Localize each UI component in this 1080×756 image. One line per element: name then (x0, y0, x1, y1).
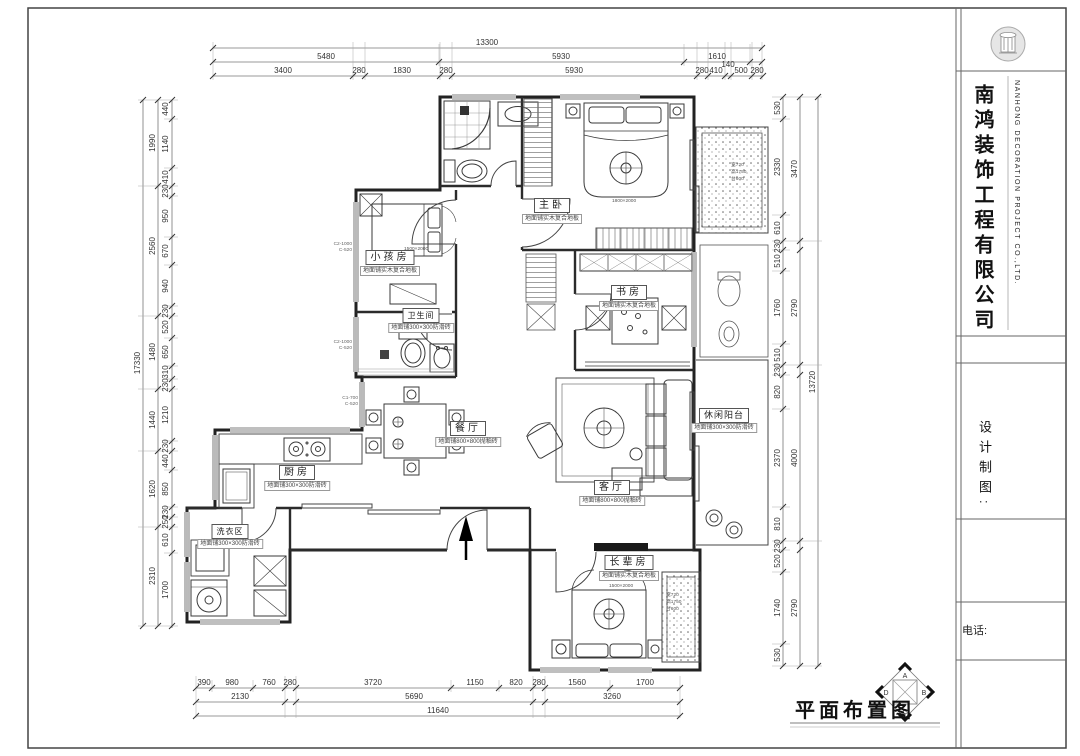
room-label-living: 客厅 (594, 480, 630, 495)
room-label-kitchen: 厨房 (279, 465, 315, 480)
room-note-living: 地面铺800×800抛釉砖 (579, 496, 645, 506)
dim-text: 1210 (161, 406, 170, 424)
dim-text: 2130 (231, 692, 249, 701)
dim-text: 510 (773, 348, 782, 362)
window-tag: C2-1000 (334, 241, 353, 247)
dim-text: 230 (161, 304, 170, 318)
window-tag: C-520 (339, 345, 352, 351)
dim-text: 280 (283, 678, 297, 687)
room-label-bath: 卫生间 (403, 308, 440, 323)
dim-text: 3260 (603, 692, 621, 701)
dim-text: 940 (161, 279, 170, 293)
elder-room-furniture (552, 570, 662, 658)
dim-text: 1440 (148, 411, 157, 429)
dim-text: 1740 (773, 599, 782, 617)
spec-line: 台600 (731, 175, 744, 182)
dim-text: 820 (773, 385, 782, 399)
company-name-en: NANHONG DECORATION PROJECT CO.,LTD. (1013, 80, 1020, 340)
dim-text: 810 (773, 517, 782, 531)
dim-text: 820 (509, 678, 523, 687)
master-bathroom (444, 99, 552, 186)
compass-a: A (903, 673, 908, 680)
balcony-leisure (696, 360, 768, 545)
room-label-study: 书房 (611, 285, 647, 300)
dim-text: 530 (773, 648, 782, 662)
dim-text: 1700 (636, 678, 654, 687)
dim-text: 280 (439, 66, 453, 75)
dim-text: 1140 (161, 135, 170, 153)
dim-text: 13300 (476, 38, 499, 47)
bed-note-elder: 1500×2000 (609, 583, 633, 589)
room-label-kids: 小孩房 (366, 250, 415, 265)
room-label-dining: 餐厅 (450, 421, 486, 436)
master-bedroom-furniture (566, 103, 692, 249)
window-tag: C2-1000 (334, 339, 353, 345)
dim-text: 280 (695, 66, 709, 75)
dim-text: 230 (773, 239, 782, 253)
dim-text: 440 (161, 454, 170, 468)
dim-text: 2310 (148, 567, 157, 585)
room-note-bath: 地面铺300×300防滑砖 (388, 323, 454, 333)
dim-text: 4000 (790, 449, 799, 467)
dim-text: 1560 (568, 678, 586, 687)
dim-text: 850 (161, 482, 170, 496)
dim-text: 280 (532, 678, 546, 687)
dim-text: 2370 (773, 449, 782, 467)
dim-text: 230 (161, 378, 170, 392)
laundry-furniture (191, 540, 286, 616)
dim-text: 530 (773, 101, 782, 115)
spec-line: 台600 (666, 605, 679, 612)
balcony-platform (700, 245, 768, 357)
room-note-kitchen: 地面铺300×300防滑砖 (264, 481, 330, 491)
room-label-laundry: 洗衣区 (212, 524, 249, 539)
dim-text: 250 (161, 515, 170, 529)
room-label-master: 主卧 (534, 198, 570, 213)
living-room-furniture (524, 378, 692, 551)
dim-text: 3470 (790, 160, 799, 178)
dim-text: 5930 (552, 52, 570, 61)
dim-text: 13720 (808, 370, 817, 393)
dim-text: 11640 (427, 706, 449, 715)
dim-text: 500 (734, 66, 748, 75)
compass-b: B (922, 690, 927, 697)
dim-text: 650 (161, 345, 170, 359)
room-note-master: 地面铺实木复合地板 (522, 214, 582, 224)
dim-text: 280 (750, 66, 764, 75)
room-label-elder: 长辈房 (605, 555, 654, 570)
room-note-kids: 地面铺实木复合地板 (360, 266, 420, 276)
dim-text: 5480 (317, 52, 335, 61)
dim-text: 17330 (133, 351, 142, 374)
room-note-study: 地面铺实木复合地板 (599, 301, 659, 311)
north-arrow-icon (459, 516, 473, 560)
dim-text: 5930 (565, 66, 583, 75)
dim-text: 1480 (148, 343, 157, 361)
sheet-title-underline (790, 723, 940, 727)
dim-text: 230 (161, 439, 170, 453)
dim-text: 3720 (364, 678, 382, 687)
dim-text: 230 (773, 539, 782, 553)
dim-text: 280 (352, 66, 366, 75)
dim-text: 230 (161, 184, 170, 198)
common-bathroom (358, 330, 454, 375)
sheet-title: 平面布置图 (795, 694, 915, 723)
dim-text: 310 (161, 365, 170, 379)
dim-text: 1990 (148, 134, 157, 152)
dim-text: 2790 (790, 599, 799, 617)
drawing-sheet: 1800×2000 1500×2000 1500×2000 宽720 高1750… (0, 0, 1080, 756)
dim-text: 510 (773, 254, 782, 268)
room-note-elder: 地面铺实木复合地板 (599, 571, 659, 581)
dim-text: 5690 (405, 692, 423, 701)
dim-text: 1830 (393, 66, 411, 75)
room-note-laundry: 地面铺300×300防滑砖 (197, 539, 263, 549)
plan-svg: 1800×2000 1500×2000 1500×2000 宽720 高1750… (0, 0, 1080, 756)
dim-text: 2790 (790, 299, 799, 317)
dim-text: 3400 (274, 66, 292, 75)
balcony-elder (662, 572, 700, 662)
bed-note-master: 1800×2000 (612, 198, 636, 204)
spec-line: 高1750 (731, 168, 747, 175)
dim-text: 2560 (148, 237, 157, 255)
company-logo (991, 27, 1025, 61)
spec-line: 高1750 (666, 598, 682, 605)
dim-text: 980 (225, 678, 239, 687)
dim-text: 410 (161, 170, 170, 184)
window-tag: C-520 (339, 247, 352, 253)
dim-text: 520 (161, 320, 170, 334)
dim-text: 230 (773, 363, 782, 377)
dim-text: 610 (773, 221, 782, 235)
dim-text: 1760 (773, 299, 782, 317)
room-label-balcony: 休闲阳台 (699, 408, 749, 423)
dim-text: 1700 (161, 581, 170, 599)
dim-text: 440 (161, 102, 170, 116)
dim-text: 670 (161, 244, 170, 258)
dim-text: 950 (161, 209, 170, 223)
room-note-balcony: 地面铺300×300防滑砖 (691, 423, 757, 433)
spec-line: 宽720 (666, 591, 679, 598)
design-drafting-label: 设计制图: (975, 420, 994, 511)
dim-text: 610 (161, 533, 170, 547)
window-tag: C-520 (345, 401, 358, 407)
dim-text: 1620 (148, 480, 157, 498)
dim-text: 1150 (466, 678, 484, 687)
dim-text: 760 (262, 678, 276, 687)
room-note-dining: 地面铺800×800抛釉砖 (435, 437, 501, 447)
floor-plan: 1800×2000 1500×2000 1500×2000 宽720 高1750… (184, 94, 768, 673)
dim-text: 520 (773, 554, 782, 568)
hall-closet (526, 254, 556, 330)
spec-line: 宽720 (731, 161, 744, 168)
dim-text: 2330 (773, 158, 782, 176)
phone-label: 电话: (962, 622, 987, 638)
dim-text: 390 (197, 678, 211, 687)
company-name-cn: 南鸿装饰工程有限公司 (968, 84, 997, 334)
dim-text: 140 (721, 60, 735, 69)
window-tag: C1-700 (342, 395, 358, 401)
